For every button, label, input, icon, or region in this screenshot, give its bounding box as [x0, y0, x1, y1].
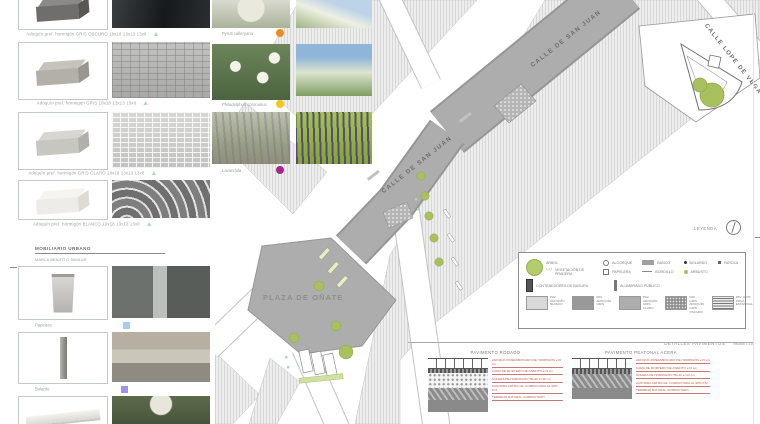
sustainability-triangle-icon: ▲	[153, 31, 160, 38]
material-render	[18, 180, 108, 220]
furniture-photo	[112, 332, 210, 382]
litter-bin-icon	[603, 269, 609, 275]
detail-pavimento-rodado: PAVIMENTO RODADO ADOQUÍN PREFABRICADO DE…	[428, 350, 563, 412]
shrub-icon	[684, 270, 688, 274]
legend-square-violet	[121, 386, 128, 393]
tree-icon	[526, 259, 543, 276]
vegetation-photo	[212, 112, 290, 164]
material-caption: Adoquín pref. hormigón BLANCO 18x18 13x1…	[18, 221, 168, 228]
material-photo-gris	[112, 42, 210, 98]
furniture-photo	[112, 396, 210, 424]
legend-group-light: FAROLA	[718, 258, 738, 276]
bollard-icon	[684, 261, 687, 264]
page-edge-line	[753, 0, 754, 424]
furniture-render-papelera	[18, 266, 108, 320]
section-layers	[428, 358, 488, 412]
legend-group-points: BOLARDO ARBUSTO	[684, 258, 708, 276]
north-arrow-icon	[726, 220, 741, 235]
details-rule	[408, 342, 753, 343]
kerb-step	[367, 170, 380, 181]
vegetation-label: Philadelphus coronarius	[222, 102, 267, 107]
detail-pavimento-peatonal: PAVIMENTO PEATONAL ACERA ADOQUÍN PREFABR…	[572, 350, 710, 399]
kerb-line-icon	[642, 271, 652, 272]
tree	[693, 78, 707, 92]
vegetation-label: Pyrus calleryana	[222, 31, 253, 36]
edge-tick	[755, 237, 760, 238]
pavement-swatch: PAV.ADOQUÍN GRIS CLARO	[619, 296, 657, 315]
legend-group-vegetation: ÁRBOL 〰 VEGETACIÓN DE PRADERA	[526, 258, 593, 276]
species-dot-orange	[276, 29, 284, 37]
kiosk-square	[708, 55, 721, 68]
legend-lighting: ALUMBRADO PÚBLICO	[614, 281, 660, 290]
material-photo-claro	[112, 112, 210, 168]
section-layers	[572, 358, 632, 399]
section-annotations: ADOQUÍN PREFABRICADO DE HORMIGÓN e=6 cm …	[636, 358, 710, 399]
public-lighting-icon	[614, 280, 617, 291]
plaza-planters	[299, 349, 337, 377]
legend-title: LEYENDA	[694, 226, 717, 231]
vegetation-photo	[296, 0, 372, 28]
material-render	[18, 42, 108, 100]
edge-tick	[10, 267, 17, 268]
bench-icon	[642, 260, 654, 265]
pavement-swatch: PAV. GRISADOQUÍN GRIS OSCURO	[665, 296, 703, 315]
material-caption: Adoquín pref. hormigón GRIS OSCURO 18x18…	[18, 31, 168, 38]
vegetation-photo	[212, 44, 290, 100]
legend-group-bench: BANCO BORDILLO	[642, 258, 673, 276]
material-photo-blanco	[112, 180, 210, 218]
furniture-label: Papelera	[35, 322, 130, 329]
pavement-swatch: PAV.ADOQUÍN BLANCO	[526, 296, 564, 315]
section-annotations: ADOQUÍN PREFABRICADO DE HORMIGÓN e=8 cm …	[492, 358, 563, 412]
furniture-photo	[112, 266, 210, 318]
material-render	[18, 112, 108, 170]
species-dot-magenta	[276, 166, 284, 174]
legend-square-blue	[123, 322, 130, 329]
pavement-swatch: PAV. GRISZONA ESTANCIAL	[712, 296, 753, 315]
sustainability-triangle-icon: ▲	[142, 100, 149, 107]
legend-group-pits: ALCORQUE PAPELERA	[603, 258, 632, 276]
material-render	[18, 0, 108, 30]
details-header: DETALLES PAVIMENTOS escala 1:10	[408, 332, 753, 350]
sustainability-triangle-icon: ▲	[151, 170, 158, 177]
vegetation-label: Lavandula	[222, 168, 241, 173]
furniture-label: Bolardo	[35, 386, 128, 393]
waste-container-icon	[526, 279, 533, 292]
legend-box: ÁRBOL 〰 VEGETACIÓN DE PRADERA ALCORQUE P…	[518, 252, 746, 329]
streetlight-icon	[718, 261, 721, 264]
vegetation-photo	[296, 44, 372, 96]
plaza-label: PLAZA DE OÑATE	[263, 293, 343, 302]
material-caption: Adoquín pref. hormigón GRIS CLARO 18x18 …	[18, 170, 168, 177]
furniture-heading: MOBILIARIO URBANO	[35, 246, 165, 254]
material-caption: Adoquín pref. hormigón GRIS 18x18 13x13 …	[18, 100, 168, 107]
meadow-icon: 〰	[546, 270, 552, 273]
material-photo-dark	[112, 0, 210, 28]
tree-pit-icon	[603, 260, 609, 266]
vegetation-photo	[212, 0, 290, 28]
vegetation-photo	[296, 112, 372, 164]
legend-containers: CONTENEDORES DE BASURA	[526, 281, 588, 290]
sustainability-triangle-icon: ▲	[146, 221, 153, 228]
pavement-swatch: PAV.ADOQUÍN GRIS	[572, 296, 610, 315]
furniture-render-banco	[18, 396, 108, 424]
furniture-subheading: MARCA BENITO O SIMILAR	[35, 257, 87, 262]
species-dot-yellow	[276, 100, 284, 108]
plan-sheet: CALLE DE SAN JUAN CALLE DE SAN JUAN CALL…	[0, 0, 760, 424]
furniture-render-bolardo	[18, 332, 108, 384]
